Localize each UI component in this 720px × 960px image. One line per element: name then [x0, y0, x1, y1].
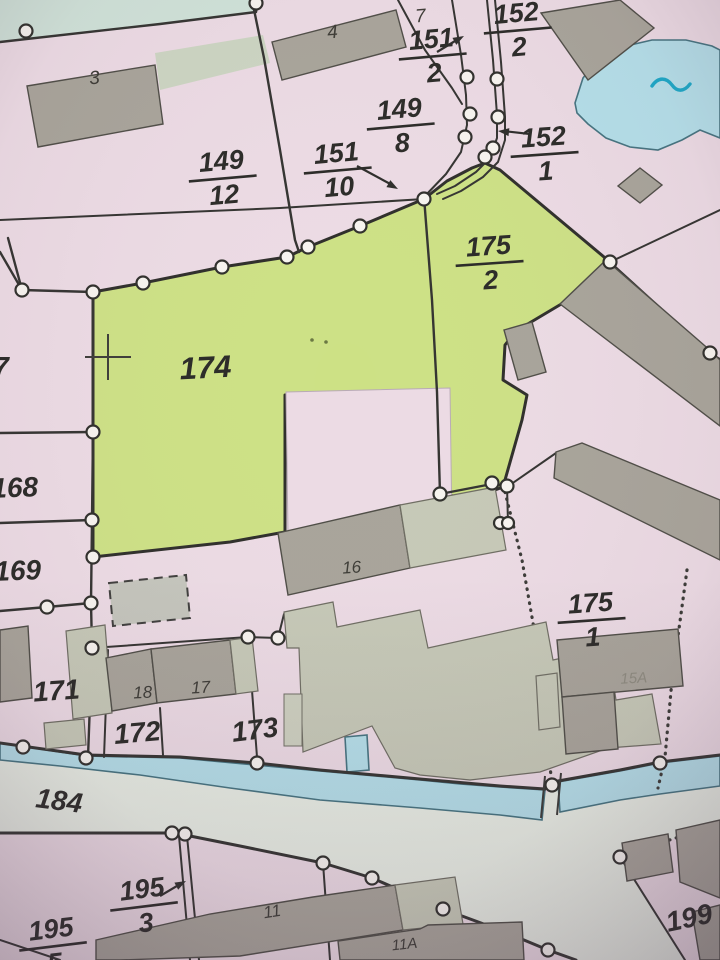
label-num: 175 — [465, 229, 513, 262]
label-den: 2 — [509, 31, 528, 62]
survey-point — [179, 828, 192, 841]
building-left-edge-shape — [0, 626, 32, 702]
building-15A-annex-shape — [536, 673, 560, 730]
survey-point — [654, 757, 667, 770]
survey-point — [479, 151, 492, 164]
parcel-label-7-left: 7 — [0, 351, 10, 382]
building-199-a-shape — [622, 834, 673, 881]
building-label-11: 11 — [262, 901, 282, 923]
survey-point — [437, 903, 450, 916]
building-label-17: 17 — [191, 677, 211, 697]
survey-point — [250, 0, 263, 10]
survey-point — [281, 251, 294, 264]
building-small-left-shape — [44, 719, 86, 749]
survey-point — [317, 857, 330, 870]
survey-point — [542, 944, 555, 957]
survey-point — [272, 632, 285, 645]
map-dot — [324, 340, 328, 344]
survey-point — [85, 597, 98, 610]
survey-point — [16, 284, 29, 297]
label-den: 2 — [424, 57, 443, 88]
building-complex-notch — [284, 694, 302, 746]
survey-point — [502, 517, 514, 529]
building-label-15A: 15A — [620, 669, 648, 687]
survey-point — [80, 752, 93, 765]
survey-point — [491, 73, 504, 86]
building-label-16: 16 — [342, 557, 363, 577]
parcel-label-171: 171 — [32, 673, 81, 707]
parcel-label-174: 174 — [179, 349, 232, 387]
survey-point — [216, 261, 229, 274]
label-den: 1 — [537, 155, 554, 186]
parcel-label-173: 173 — [230, 711, 281, 748]
survey-point — [486, 477, 499, 490]
parcel-label-169: 169 — [0, 554, 42, 587]
survey-point — [251, 757, 264, 770]
label-den: 2 — [481, 264, 499, 295]
survey-point — [614, 851, 627, 864]
survey-point — [418, 193, 431, 206]
building-dashed-shape — [109, 575, 190, 626]
survey-point — [242, 631, 255, 644]
survey-point — [17, 741, 30, 754]
survey-point — [354, 220, 367, 233]
label-num: 152 — [520, 120, 567, 153]
survey-point — [434, 488, 447, 501]
label-num: 151 — [407, 22, 455, 56]
survey-point — [492, 111, 505, 124]
survey-point — [704, 347, 717, 360]
label-num: 151 — [312, 136, 360, 170]
label-den: 8 — [393, 127, 411, 158]
label-num: 149 — [197, 144, 245, 178]
cadastral-map-photo: 149 12 151 2 152 2 149 8 151 10 152 1 17… — [0, 0, 720, 960]
survey-point — [137, 277, 150, 290]
survey-point — [604, 256, 617, 269]
survey-point — [166, 827, 179, 840]
survey-point — [461, 71, 474, 84]
survey-point — [86, 514, 99, 527]
survey-point — [86, 642, 99, 655]
survey-point — [41, 601, 54, 614]
building-label-4: 4 — [326, 22, 338, 44]
survey-point — [87, 286, 100, 299]
stream-stub-1 — [345, 735, 369, 772]
label-num: 195 — [27, 911, 76, 946]
building-label-11A: 11A — [391, 935, 418, 955]
label-num: 195 — [118, 871, 167, 906]
building-label-18: 18 — [133, 682, 153, 702]
label-den: 12 — [208, 179, 241, 212]
survey-point — [20, 25, 33, 38]
map-dot — [310, 338, 314, 342]
label-den: 10 — [323, 171, 356, 204]
building-11-annex-shape — [395, 877, 463, 930]
label-den: 1 — [584, 621, 601, 652]
survey-point — [546, 779, 559, 792]
building-18-shape — [106, 649, 157, 711]
survey-point — [459, 131, 472, 144]
survey-point — [366, 872, 379, 885]
survey-point — [87, 551, 100, 564]
map-canvas: 149 12 151 2 152 2 149 8 151 10 152 1 17… — [0, 0, 720, 960]
label-num: 149 — [375, 92, 423, 126]
label-num: 175 — [567, 586, 615, 619]
parcel-label-172: 172 — [113, 715, 163, 750]
survey-point — [464, 108, 477, 121]
survey-point — [87, 426, 100, 439]
survey-point — [501, 480, 514, 493]
parcel-label-168: 168 — [0, 471, 39, 504]
label-num: 152 — [492, 0, 540, 30]
parcel-label-184: 184 — [34, 782, 85, 819]
survey-point — [302, 241, 315, 254]
building-15A-leg-shape — [562, 692, 618, 754]
